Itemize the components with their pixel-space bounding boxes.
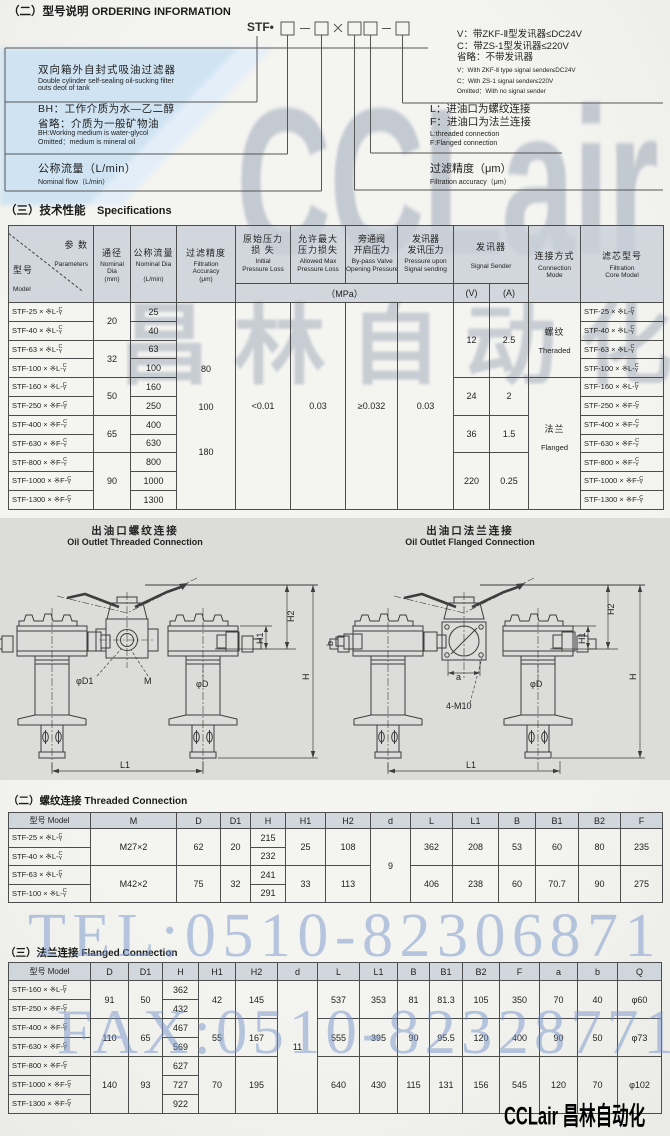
svg-text:H1: H1: [255, 632, 265, 644]
svg-text:φD: φD: [530, 679, 543, 689]
svg-text:b: b: [325, 641, 335, 646]
svg-text:4-M10: 4-M10: [446, 701, 472, 711]
svg-text:L1: L1: [120, 760, 130, 770]
svg-text:H2: H2: [606, 603, 616, 615]
svg-text:L1: L1: [466, 760, 476, 770]
svg-text:H: H: [628, 674, 638, 681]
svg-text:a: a: [456, 672, 461, 682]
svg-text:φD1: φD1: [76, 676, 93, 686]
svg-text:H1: H1: [577, 632, 587, 644]
svg-text:M: M: [144, 676, 152, 686]
svg-text:H: H: [301, 674, 311, 681]
svg-text:φD: φD: [196, 679, 209, 689]
svg-text:H2: H2: [286, 610, 296, 622]
